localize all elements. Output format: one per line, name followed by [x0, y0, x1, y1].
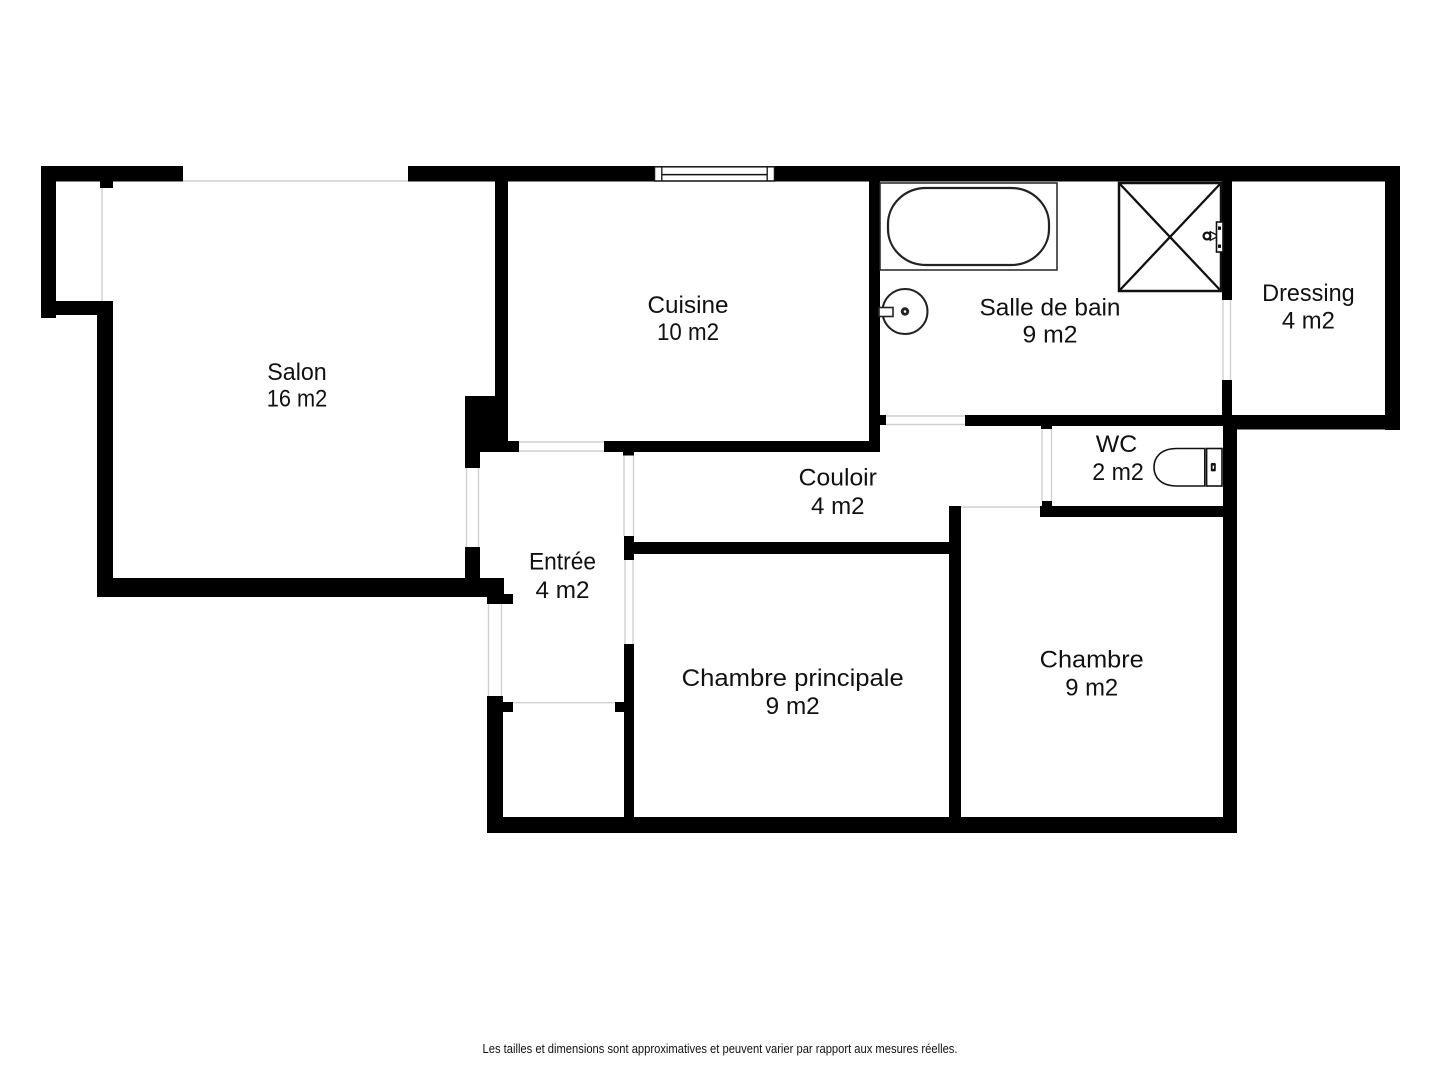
svg-text:4 m2: 4 m2 [1282, 307, 1335, 334]
svg-text:4 m2: 4 m2 [811, 493, 865, 520]
svg-text:Salon: Salon [267, 359, 327, 386]
svg-text:Chambre principale: Chambre principale [682, 665, 904, 692]
svg-text:Entrée: Entrée [529, 549, 596, 576]
svg-text:Cuisine: Cuisine [648, 292, 729, 319]
svg-text:2 m2: 2 m2 [1092, 459, 1144, 486]
svg-text:Chambre: Chambre [1040, 647, 1144, 674]
svg-text:Dressing: Dressing [1262, 280, 1355, 307]
svg-text:4 m2: 4 m2 [536, 577, 590, 604]
svg-text:WC: WC [1096, 431, 1138, 458]
svg-text:9 m2: 9 m2 [1065, 675, 1118, 702]
svg-text:9 m2: 9 m2 [1023, 322, 1078, 349]
svg-text:Les tailles et dimensions sont: Les tailles et dimensions sont approxima… [483, 1041, 958, 1056]
svg-text:9 m2: 9 m2 [766, 693, 820, 720]
svg-text:Salle de bain: Salle de bain [980, 294, 1121, 321]
svg-text:10 m2: 10 m2 [657, 319, 719, 346]
svg-text:16 m2: 16 m2 [267, 386, 328, 413]
svg-text:Couloir: Couloir [799, 465, 877, 492]
